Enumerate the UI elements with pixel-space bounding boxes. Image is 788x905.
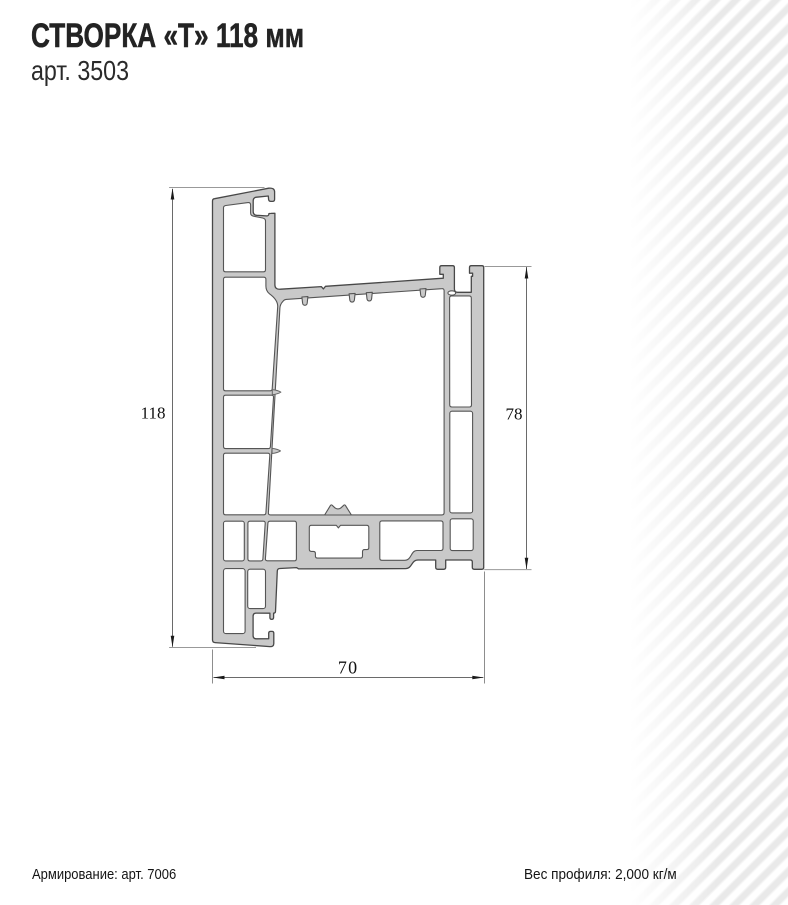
svg-text:78: 78 xyxy=(506,404,523,423)
svg-text:70: 70 xyxy=(338,657,358,677)
svg-text:118: 118 xyxy=(141,404,166,423)
